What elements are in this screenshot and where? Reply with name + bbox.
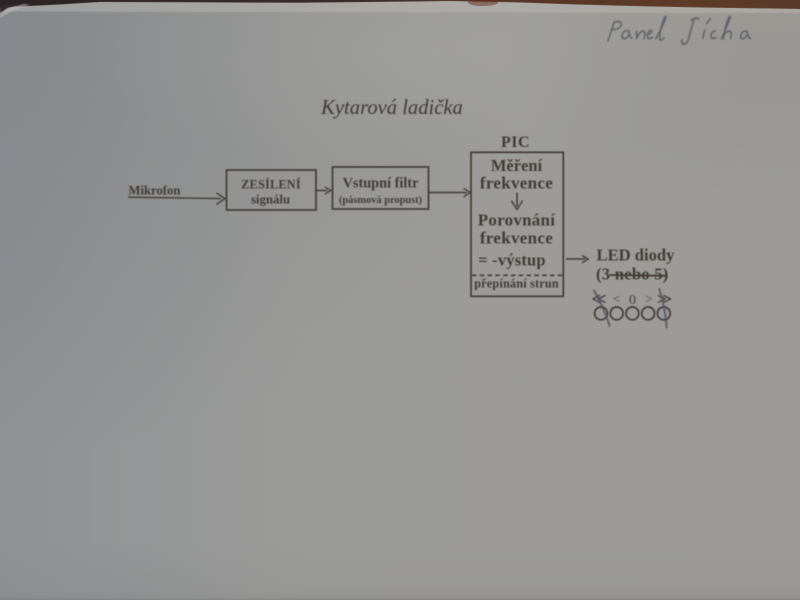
svg-text:Kytarová ladička: Kytarová ladička bbox=[320, 97, 463, 119]
svg-text:ZESÍLENÍ: ZESÍLENÍ bbox=[241, 178, 301, 192]
svg-text:frekvence: frekvence bbox=[480, 174, 553, 193]
svg-text:PIC: PIC bbox=[501, 134, 530, 151]
svg-text:(pásmová propust): (pásmová propust) bbox=[339, 195, 422, 206]
svg-text:= -výstup: = -výstup bbox=[478, 251, 546, 270]
svg-text:Měření: Měření bbox=[491, 156, 543, 175]
svg-text:přepínání strun: přepínání strun bbox=[474, 277, 559, 291]
svg-text:0: 0 bbox=[629, 293, 636, 308]
svg-text:Mikrofon: Mikrofon bbox=[129, 184, 181, 198]
svg-text:<: < bbox=[613, 291, 620, 306]
svg-text:Vstupní filtr: Vstupní filtr bbox=[343, 176, 420, 192]
svg-text:Porovnání: Porovnání bbox=[478, 211, 556, 230]
svg-text:frekvence: frekvence bbox=[480, 229, 553, 248]
svg-text:signálu: signálu bbox=[251, 193, 290, 207]
svg-text:(3 nebo 5): (3 nebo 5) bbox=[596, 265, 669, 284]
svg-text:>: > bbox=[645, 291, 652, 306]
svg-text:LED diody: LED diody bbox=[597, 245, 676, 264]
